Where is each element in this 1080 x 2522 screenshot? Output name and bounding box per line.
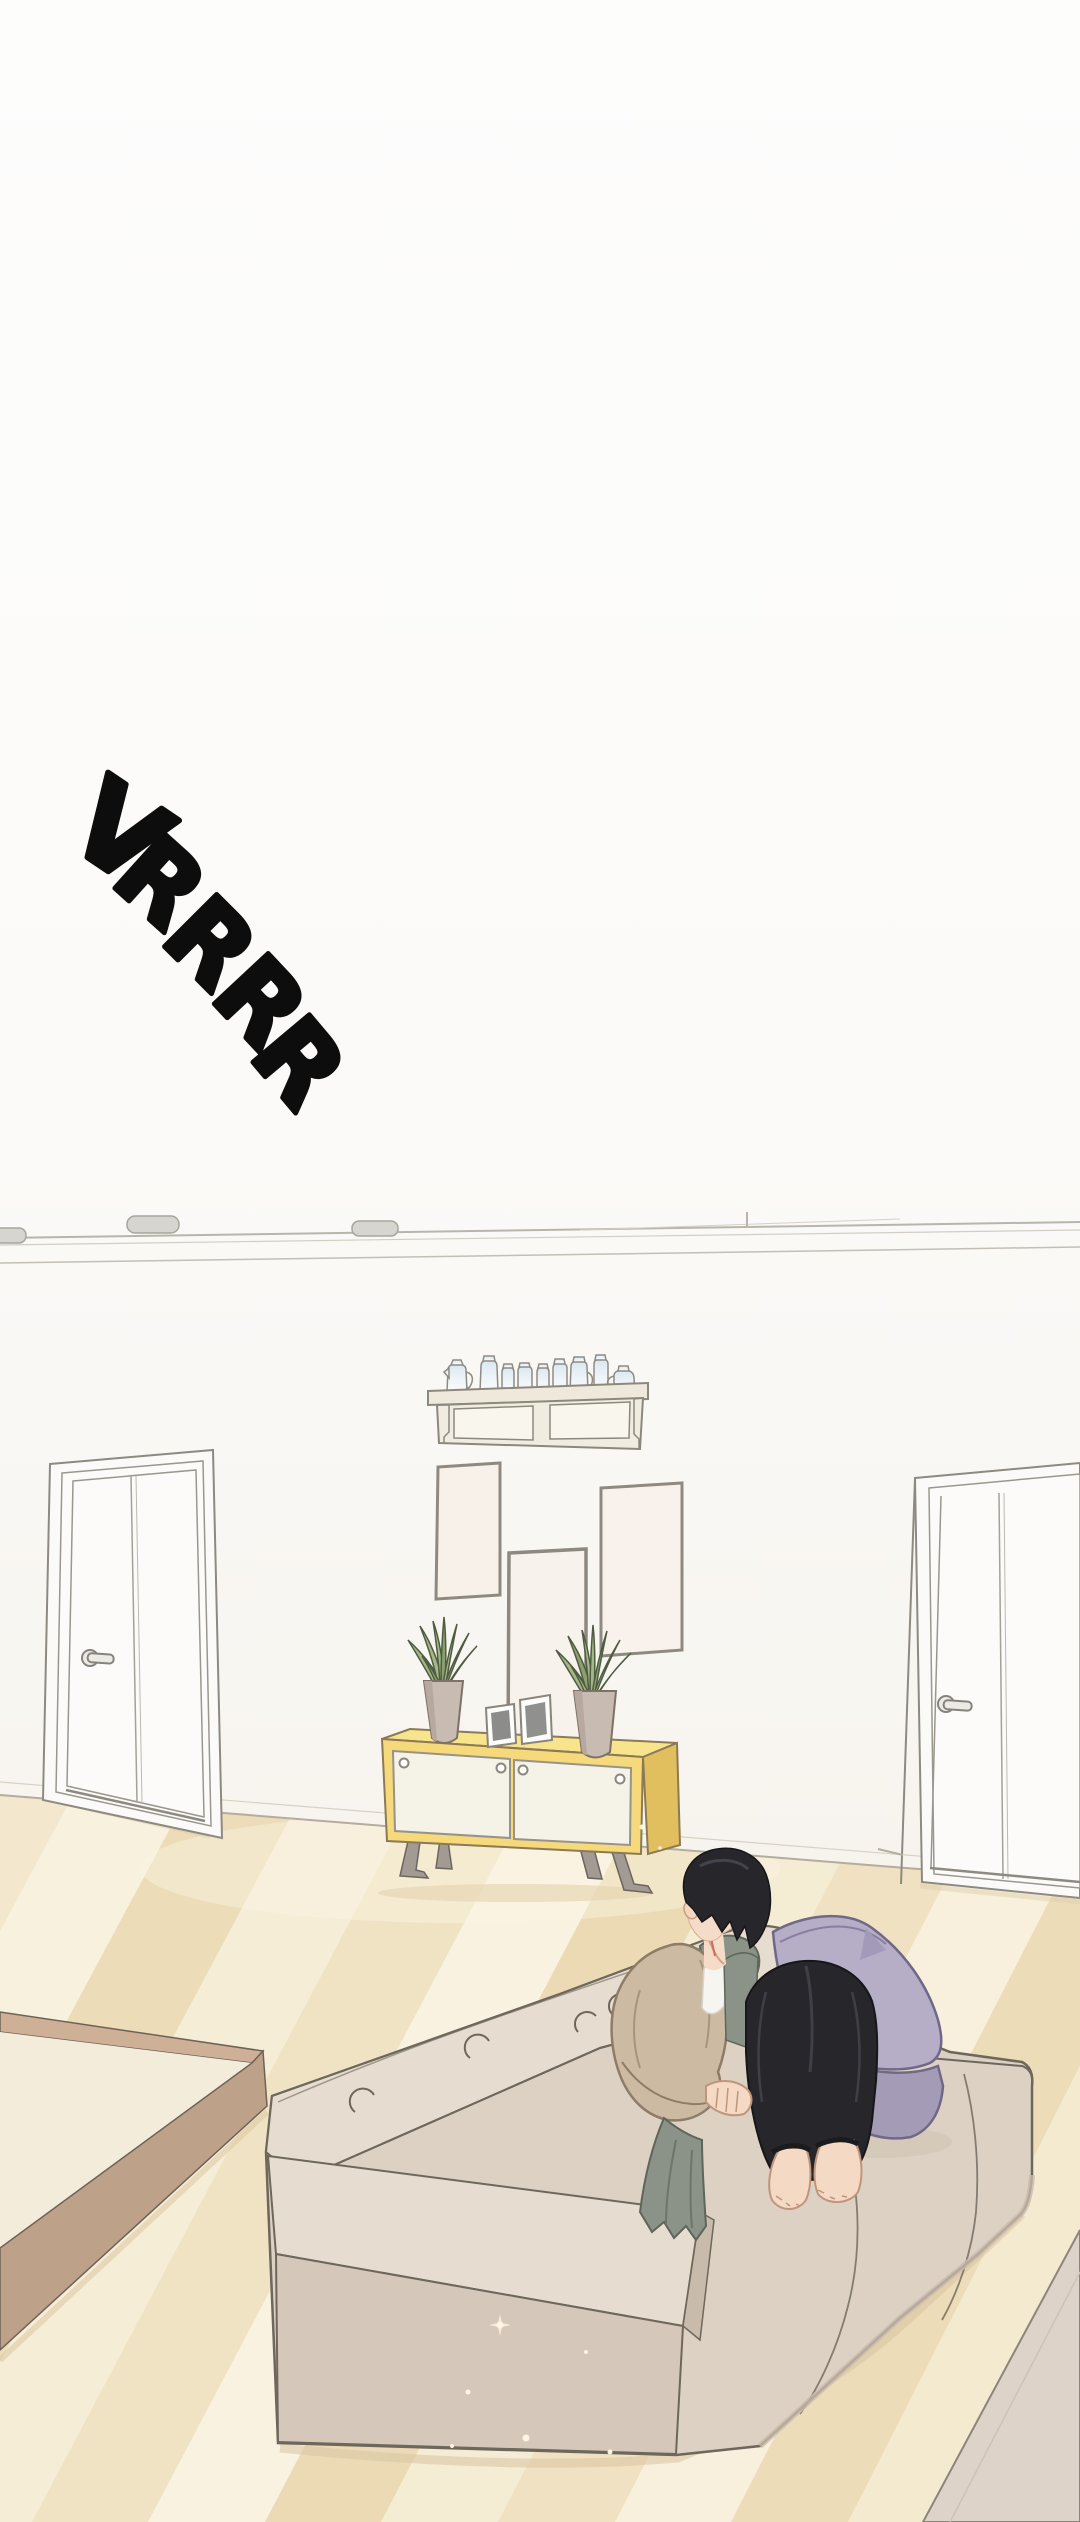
ceiling-light-icon [127,1216,179,1233]
photo-frame-large [520,1695,552,1744]
panel-art: V R R R R [0,0,1080,2522]
ceiling-light-icon [352,1221,398,1236]
wall-frame-left [436,1463,500,1599]
sideboard-door [393,1751,510,1838]
wall-frame-right [601,1483,682,1656]
sideboard-door [514,1760,631,1845]
shelf-cubby [550,1402,630,1439]
sideboard-side [643,1743,680,1854]
shelf-cubby [454,1406,533,1440]
left-door [43,1450,222,1838]
photo-frame-small [486,1704,516,1747]
webtoon-panel: V R R R R [0,0,1080,2522]
ceiling-light-icon [0,1228,26,1243]
